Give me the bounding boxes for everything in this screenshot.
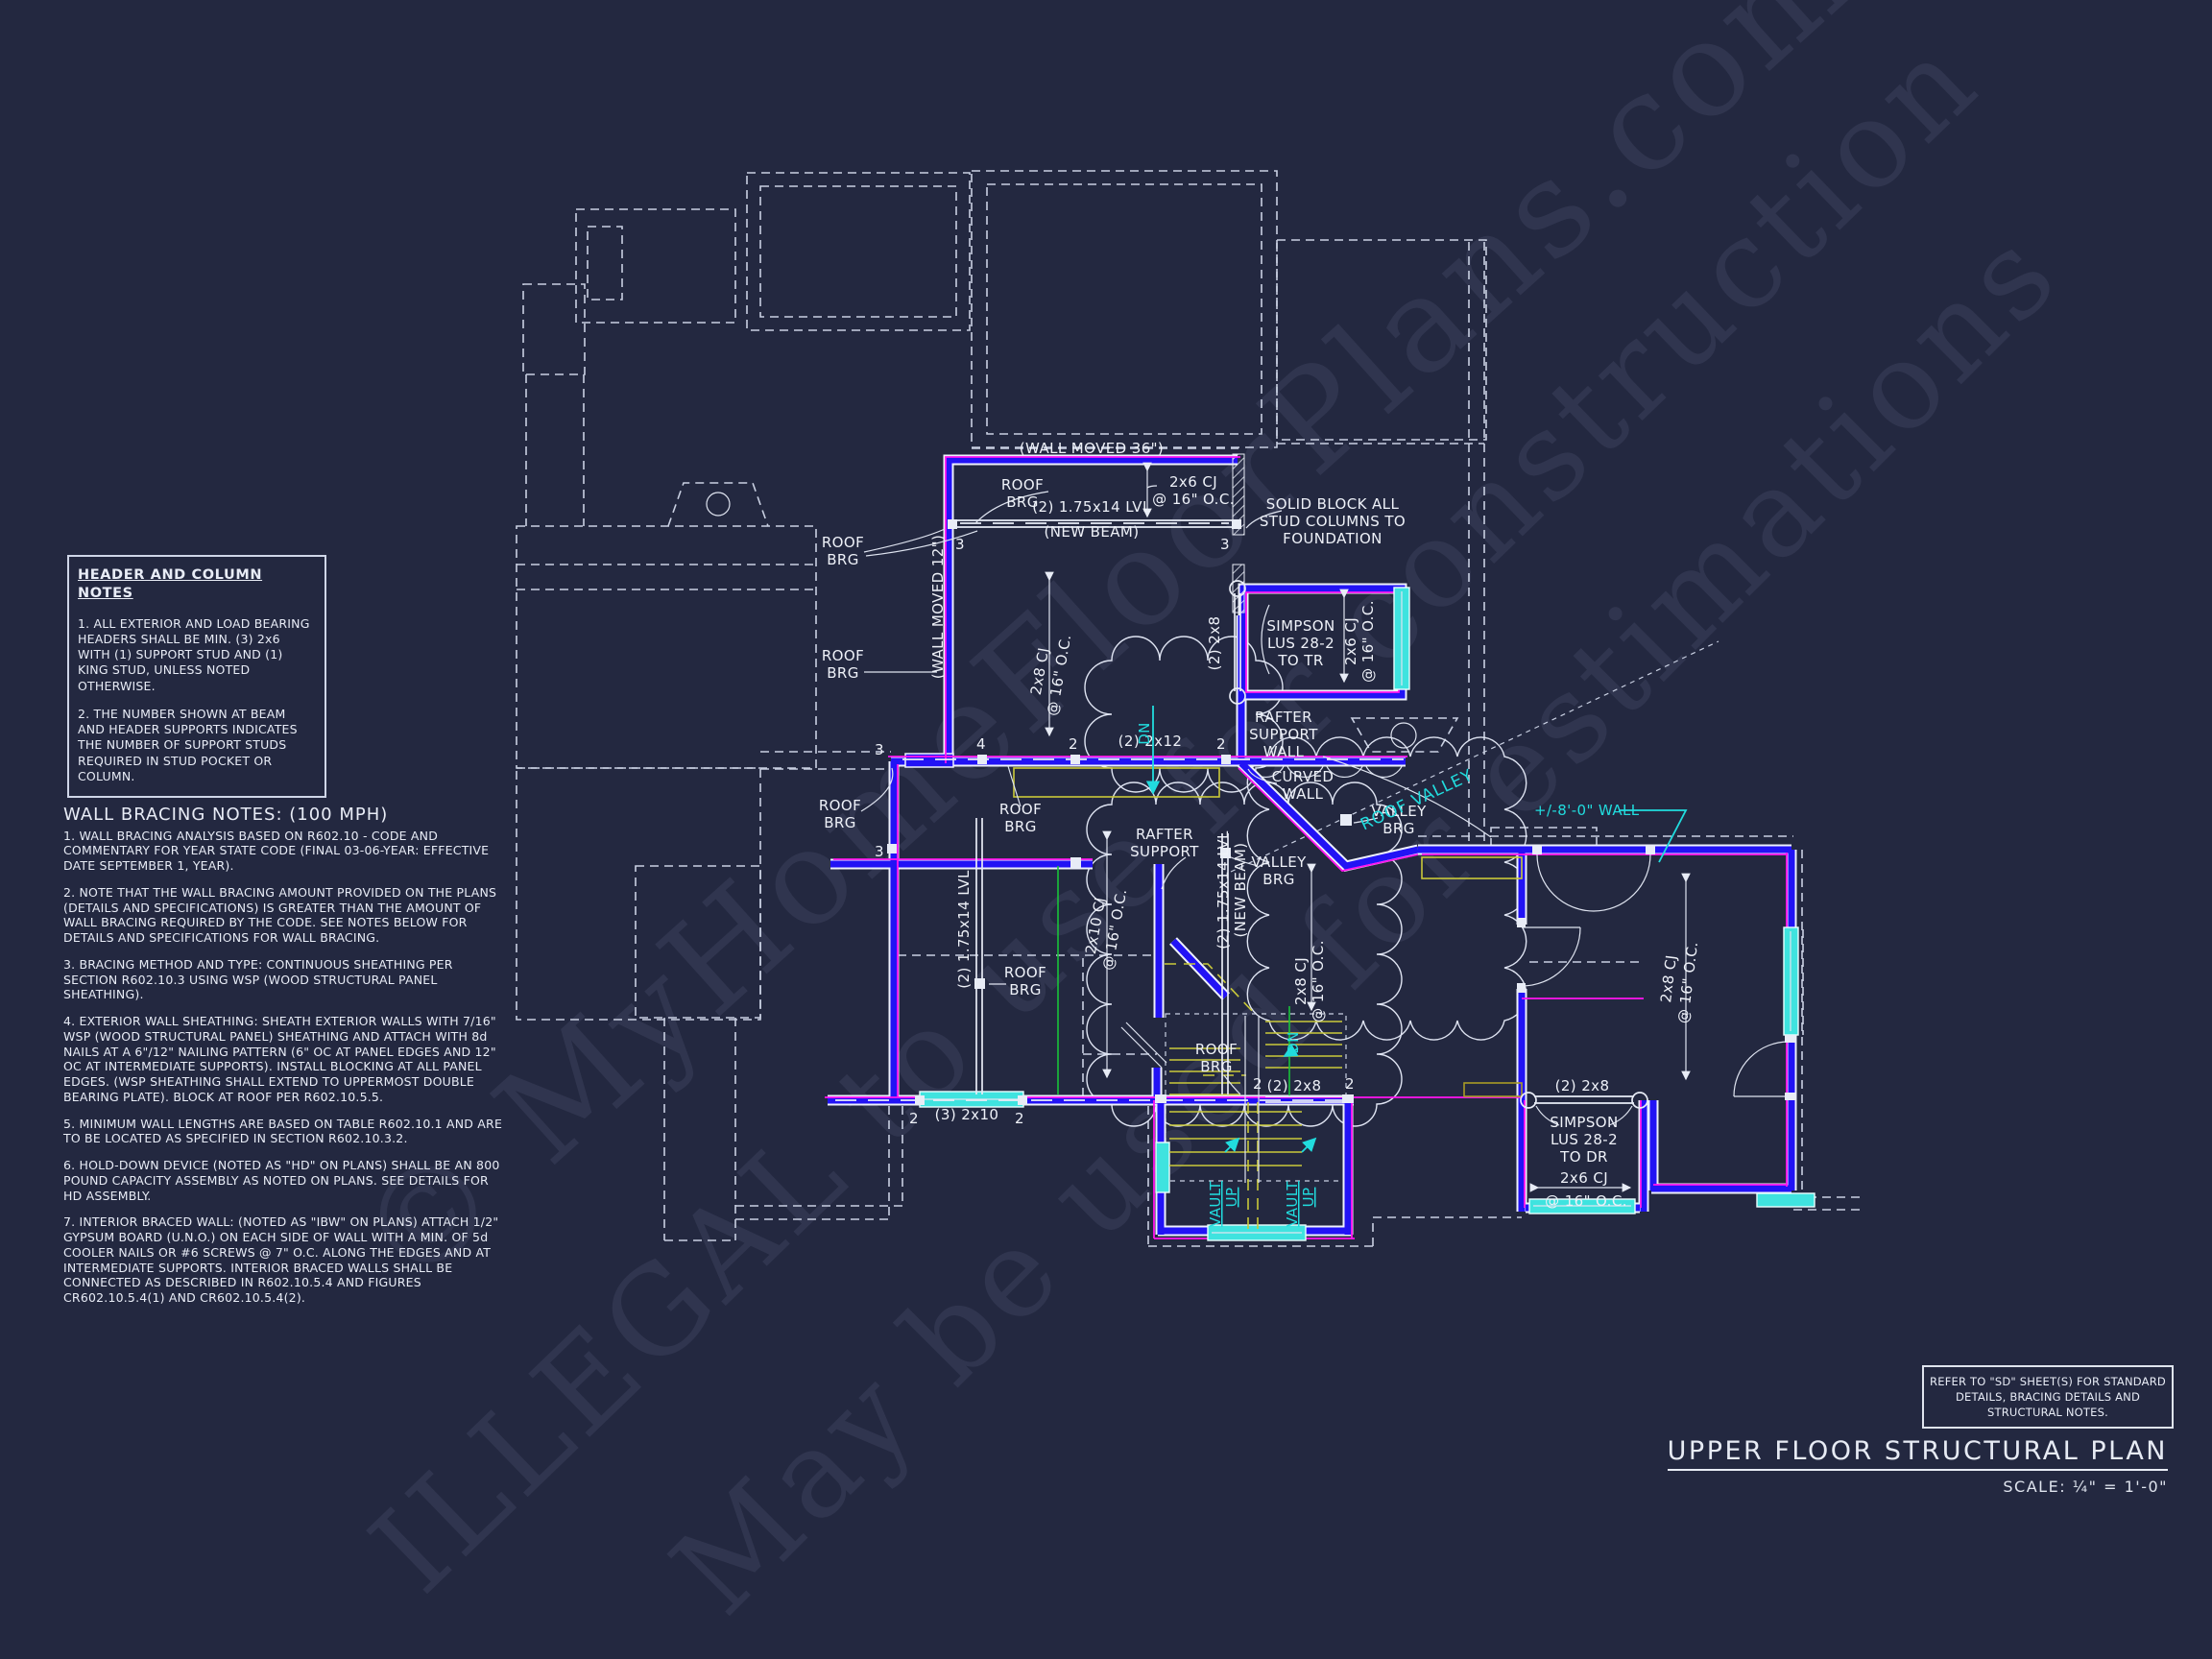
wall-bracing-notes: WALL BRACING NOTES: (100 MPH) 1. WALL BR… [63,805,507,1317]
label-cj: 2x6 CJ [1560,1169,1608,1187]
title-block: UPPER FLOOR STRUCTURAL PLAN SCALE: ¼" = … [1668,1436,2168,1496]
label-rafter-support: SUPPORT [1130,843,1199,860]
label-dn: DN [1136,722,1153,745]
label-lvl: (2) 1.75x14 LVL [1032,498,1151,516]
support-stud-count: 2 [1015,1110,1024,1127]
blueprint-sheet: © MyHomeFloorPlans.com ILLEGAL to use fo… [0,0,2212,1659]
watermark: © MyHomeFloorPlans.com ILLEGAL to use fo… [328,0,2085,1641]
support-stud-count: 2 [909,1110,919,1127]
label-vault-up: UP [1300,1188,1317,1208]
label-cj: 2x6 CJ [1169,473,1217,491]
label-simpson-dr: SIMPSON [1550,1114,1618,1131]
bracing-note: 7. INTERIOR BRACED WALL: (NOTED AS "IBW"… [63,1214,507,1306]
label-roof-brg: BRG [824,814,856,831]
label-oc: @ 16" O.C. [1545,1192,1627,1210]
label-simpson-tr: LUS 28-2 [1267,635,1334,652]
support-stud-count: 4 [976,735,986,753]
label-lvl: (2) 1.75x14 LVL [1214,830,1232,950]
sheet-scale: SCALE: ¼" = 1'-0" [1668,1478,2168,1496]
label-simpson-dr: TO DR [1559,1148,1608,1166]
support-stud-count: 3 [1220,536,1230,553]
support-stud-count: 3 [875,843,884,860]
bracing-note: 6. HOLD-DOWN DEVICE (NOTED AS "HD" ON PL… [63,1158,507,1203]
label-solid-block: SOLID BLOCK ALL [1266,495,1400,513]
label-roof-brg: ROOF [819,797,861,814]
label-wall-moved-12: (WALL MOVED 12") [929,535,947,679]
bracing-note: 4. EXTERIOR WALL SHEATHING: SHEATH EXTER… [63,1014,507,1105]
support-stud-count: 2 [1253,1075,1262,1093]
label-roof-brg: ROOF [822,647,864,664]
label-solid-block: FOUNDATION [1283,530,1382,547]
label-wall-moved-36: (WALL MOVED 36") [1020,440,1164,457]
header-notes-title: HEADER AND COLUMN NOTES [78,566,316,603]
label-curved-wall: WALL [1283,785,1324,803]
label-simpson-tr: SIMPSON [1266,617,1334,635]
sheet-title: UPPER FLOOR STRUCTURAL PLAN [1668,1436,2168,1471]
bracing-note: 5. MINIMUM WALL LENGTHS ARE BASED ON TAB… [63,1117,507,1147]
label-rafter-support-wall: SUPPORT [1249,726,1318,743]
sd-reference-text: REFER TO "SD" SHEET(S) FOR STANDARD DETA… [1930,1375,2166,1419]
label-oc: @ 16" O.C. [1674,941,1701,1024]
label-valley-brg: VALLEY [1251,854,1307,871]
header-column-notes-box: HEADER AND COLUMN NOTES 1. ALL EXTERIOR … [67,555,326,798]
label-2x8-header: (2) 2x8 [1267,1077,1322,1094]
label-new-beam: (NEW BEAM) [1045,523,1140,541]
window [1757,1193,1815,1207]
label-new-beam: (NEW BEAM) [1232,843,1249,938]
sd-reference-box: REFER TO "SD" SHEET(S) FOR STANDARD DETA… [1922,1365,2174,1429]
label-cj: 2x6 CJ [1342,617,1359,665]
bracing-note: 3. BRACING METHOD AND TYPE: CONTINUOUS S… [63,957,507,1002]
label-2x8-header: (2) 2x8 [1206,616,1223,671]
label-curved-wall: CURVED [1272,768,1334,785]
label-2x8-header: (2) 2x8 [1555,1077,1610,1094]
label-roof-brg: ROOF [822,534,864,551]
support-stud-count: 3 [875,741,884,758]
label-roof-brg: ROOF [999,801,1042,818]
window [1156,1142,1169,1192]
support-stud-count: 3 [955,536,965,553]
bracing-note: 1. WALL BRACING ANALYSIS BASED ON R602.1… [63,829,507,874]
label-roof-brg: BRG [827,551,859,568]
label-valley-brg: BRG [1262,871,1295,888]
bracing-notes-title: WALL BRACING NOTES: (100 MPH) [63,805,507,827]
header-note: 2. THE NUMBER SHOWN AT BEAM AND HEADER S… [78,707,316,784]
label-roof-brg: ROOF [1001,476,1044,493]
label-rafter-support-wall: RAFTER [1255,709,1312,726]
label-roof-brg: BRG [827,664,859,682]
watermark-line-2: ILLEGAL to use for construction [345,9,2006,1620]
label-roof-brg: BRG [1004,818,1037,835]
label-roof-brg: ROOF [1195,1041,1238,1058]
support-stud-count: 2 [1069,735,1078,753]
label-rafter-support: RAFTER [1136,826,1193,843]
label-vault-up: VAULT [1207,1181,1224,1227]
label-oc: @ 16" O.C. [1310,940,1327,1022]
label-solid-block: STUD COLUMNS TO [1260,513,1406,530]
label-rafter-support-wall: WALL [1263,743,1305,760]
support-stud-count: 2 [1345,1075,1355,1093]
bay-window [668,483,768,526]
header-note: 1. ALL EXTERIOR AND LOAD BEARING HEADERS… [78,616,316,694]
label-oc: @ 16" O.C. [1359,600,1377,683]
label-roof-brg: ROOF [1004,964,1046,981]
label-oc: @ 16" O.C. [1152,491,1235,508]
label-simpson-dr: LUS 28-2 [1551,1131,1618,1148]
label-roof-brg: BRG [1006,493,1039,511]
label-3-2x10-header: (3) 2x10 [935,1106,999,1123]
label-cj: 2x8 CJ [1292,957,1310,1005]
label-vault-up: VAULT [1284,1181,1301,1227]
label-roof-brg: BRG [1200,1058,1233,1075]
label-simpson-tr: TO TR [1277,652,1323,669]
label-roof-brg: BRG [1009,981,1042,998]
label-lvl: (2) 1.75x14 LVL [955,870,973,989]
label-vault-up: UP [1223,1188,1240,1208]
bracing-note: 2. NOTE THAT THE WALL BRACING AMOUNT PRO… [63,885,507,946]
support-stud-count: 2 [1216,735,1226,753]
